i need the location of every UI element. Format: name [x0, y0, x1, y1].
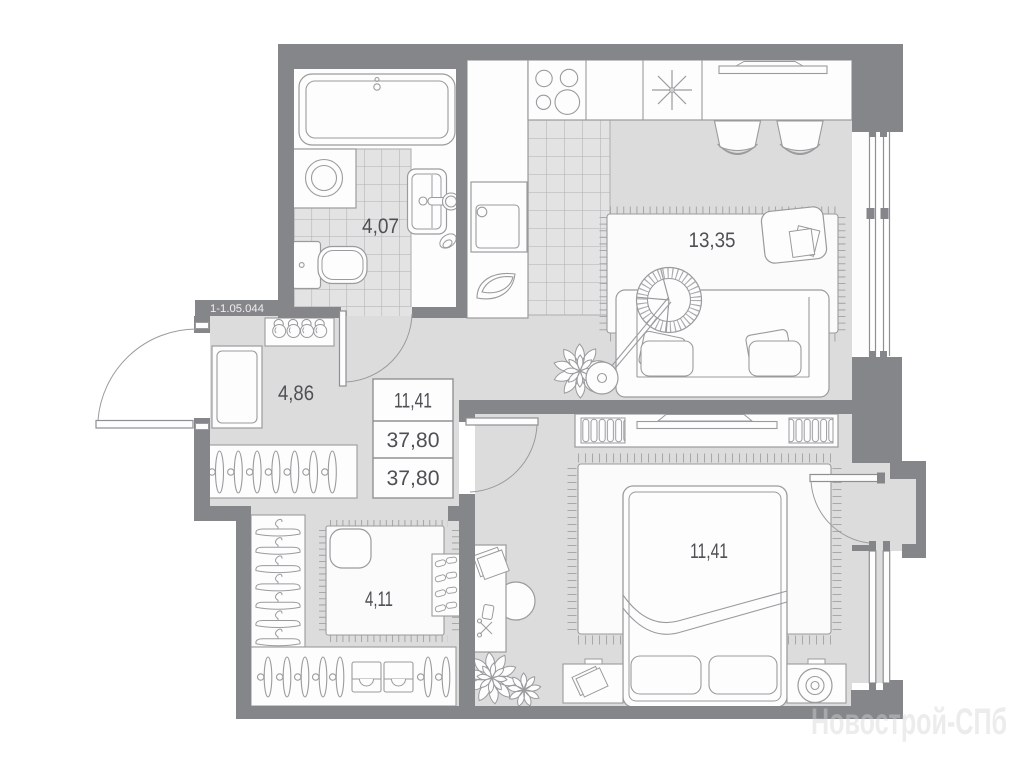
svg-text:4,11: 4,11	[365, 588, 393, 611]
svg-text:Новострой-СПб: Новострой-СПб	[811, 701, 1007, 742]
svg-text:1-1.05.044: 1-1.05.044	[210, 303, 264, 315]
svg-text:37,80: 37,80	[387, 467, 440, 490]
svg-text:4,07: 4,07	[362, 215, 399, 238]
svg-text:13,35: 13,35	[689, 229, 736, 252]
svg-text:11,41: 11,41	[394, 390, 432, 413]
svg-text:37,80: 37,80	[387, 429, 440, 452]
svg-text:4,86: 4,86	[278, 382, 314, 405]
svg-text:11,41: 11,41	[690, 540, 728, 563]
